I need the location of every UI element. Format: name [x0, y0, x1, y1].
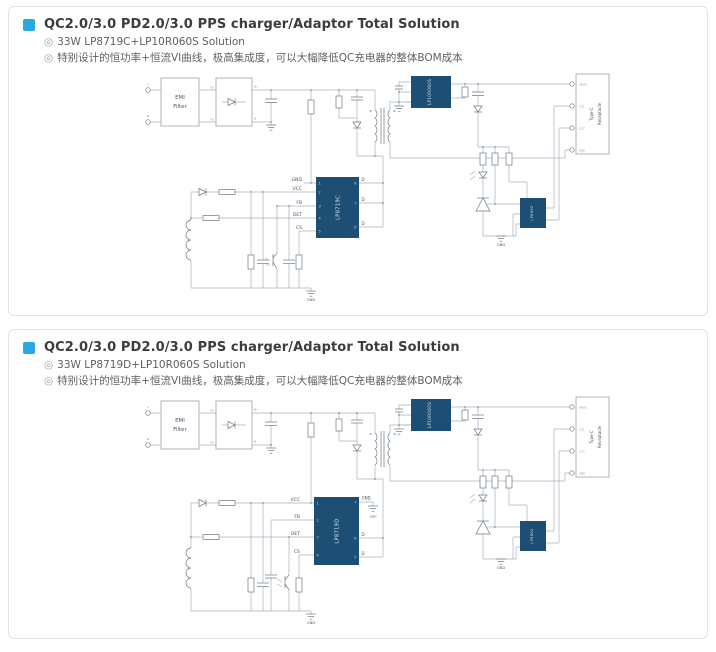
panel-header: QC2.0/3.0 PD2.0/3.0 PPS charger/Adaptor …: [23, 17, 705, 32]
cc-wires: [546, 429, 570, 543]
connector-pin-label: CC2: [579, 126, 585, 130]
emi-label-1: EMI: [175, 95, 185, 101]
optocoupler-transistor: [265, 205, 278, 288]
panel-title: QC2.0/3.0 PD2.0/3.0 PPS charger/Adaptor …: [44, 340, 460, 355]
typec-connector: VBUS CC1 CC2 GND Type-C Receptacle: [570, 74, 609, 154]
pin-number: 2: [319, 190, 321, 194]
connector-pin-label: CC1: [579, 427, 585, 431]
emi-filter-box: EMI Filter: [161, 78, 199, 126]
pin-label: CS: [294, 549, 300, 555]
transformer: [370, 413, 412, 481]
pin-number: 8: [354, 181, 356, 185]
connector-name-2: Receptacle: [597, 425, 602, 448]
typec-connector: VBUS CC1 CC2 GND Type-C Receptacle: [570, 397, 609, 477]
bulk-capacitor: [252, 89, 277, 130]
bullet-item: ◎特别设计的恒功率+恒流VI曲线，极高集成度，可以大幅降低QC充电器的整体BOM…: [44, 374, 705, 390]
connector-pin-label: GND: [579, 471, 585, 475]
shunt-regulator: [476, 521, 495, 534]
gnd-label: GND: [497, 566, 505, 570]
ground-symbol: [266, 125, 276, 130]
ac-label: AC: [210, 117, 214, 121]
ground-symbol: [496, 559, 506, 564]
sr-ic: LP10R060S: [394, 76, 468, 111]
pin-number: 3: [317, 535, 319, 539]
pin-number: 5: [354, 555, 356, 559]
rcd-snubber: [336, 412, 383, 479]
ac-label: AC: [210, 85, 214, 89]
bullet-list: ◎33W LP8719C+LP10R060S Solution ◎特别设计的恒功…: [44, 35, 705, 67]
rcd-snubber: [336, 89, 383, 156]
terminal-n-label: N: [147, 437, 149, 441]
circle-bullet-icon: ◎: [44, 375, 53, 387]
ground-symbol: [306, 291, 316, 296]
emi-label-2: Filter: [173, 427, 187, 433]
bullet-text: 特别设计的恒功率+恒流VI曲线，极高集成度，可以大幅降低QC充电器的整体BOM成…: [57, 375, 463, 387]
main-ic-name: LP8719D: [335, 518, 341, 543]
optocoupler-led: [470, 171, 487, 180]
ground-symbol: [394, 429, 404, 434]
main-ic: LP8719D VCC FB DET CS 1 2 3 4 7 6 5 GND …: [219, 495, 378, 565]
bridge-rectifier: [216, 401, 252, 449]
emi-filter-box: EMI Filter: [161, 401, 199, 449]
pin-number: 7: [354, 201, 356, 205]
ac-input-terminals: L N: [146, 82, 161, 124]
transformer: [370, 90, 412, 158]
panel-title: QC2.0/3.0 PD2.0/3.0 PPS charger/Adaptor …: [44, 17, 460, 32]
pin-number: 1: [317, 501, 319, 505]
pin-number: 5: [319, 229, 321, 233]
panel-header: QC2.0/3.0 PD2.0/3.0 PPS charger/Adaptor …: [23, 340, 705, 355]
bminus-label: B-: [254, 439, 257, 443]
bullet-item: ◎33W LP8719D+LP10R060S Solution: [44, 358, 705, 374]
bulk-capacitor: [252, 412, 277, 453]
solution-panel-1: QC2.0/3.0 PD2.0/3.0 PPS charger/Adaptor …: [8, 6, 708, 316]
pin-label: FB: [296, 200, 302, 206]
shunt-regulator: [476, 198, 495, 211]
bplus-label: B+: [254, 407, 259, 411]
blue-square-icon: [23, 19, 35, 31]
pin-label: GND: [362, 495, 371, 500]
circle-bullet-icon: ◎: [44, 36, 53, 48]
startup-resistor: [308, 412, 314, 504]
sr-ic-name: LP10R060S: [427, 401, 432, 427]
gnd-label: GND: [497, 243, 505, 247]
ground-symbol: [266, 448, 276, 453]
ground-symbol: [496, 236, 506, 241]
bullet-text: 33W LP8719D+LP10R060S Solution: [57, 359, 246, 371]
pin-label: DET: [293, 212, 302, 218]
ground-symbol: [394, 106, 404, 111]
bullet-item: ◎特别设计的恒功率+恒流VI曲线，极高集成度，可以大幅降低QC充电器的整体BOM…: [44, 51, 705, 67]
connector-name-1: Type-C: [589, 107, 594, 122]
connector-pin-label: VBUS: [579, 405, 587, 409]
pin-label: CS: [296, 225, 302, 231]
protocol-ic-name: LP8902: [530, 205, 534, 220]
solution-panel-2: QC2.0/3.0 PD2.0/3.0 PPS charger/Adaptor …: [8, 329, 708, 639]
ground-symbol: [306, 614, 316, 619]
optocoupler-transistor: [277, 536, 290, 611]
pin-label: DET: [291, 531, 300, 537]
bullet-item: ◎33W LP8719C+LP10R060S Solution: [44, 35, 705, 51]
gnd-label: GND: [307, 298, 315, 302]
pin-number: 3: [319, 204, 321, 208]
bullet-list: ◎33W LP8719D+LP10R060S Solution ◎特别设计的恒功…: [44, 358, 705, 390]
drain-bus: [359, 156, 383, 227]
pin-label: FB: [294, 514, 300, 520]
bridge-rectifier: [216, 78, 252, 126]
terminal-n-label: N: [147, 114, 149, 118]
bplus-label: B+: [254, 84, 259, 88]
startup-resistor: [308, 89, 314, 184]
pin-number: 2: [317, 518, 319, 522]
cc-wires: [546, 106, 570, 220]
emi-label-2: Filter: [173, 104, 187, 110]
ground-symbol: [368, 506, 378, 511]
ac-label: AC: [210, 408, 214, 412]
pin-number: 1: [319, 181, 321, 185]
main-ic-name: LP8719C: [336, 194, 342, 219]
pin-label: D: [362, 532, 365, 537]
terminal-l-label: L: [147, 82, 149, 86]
connector-name-2: Receptacle: [597, 102, 602, 125]
ac-input-terminals: L N: [146, 405, 161, 447]
bullet-text: 特别设计的恒功率+恒流VI曲线，极高集成度，可以大幅降低QC充电器的整体BOM成…: [57, 52, 463, 64]
connector-name-1: Type-C: [589, 430, 594, 445]
pin-number: 6: [354, 225, 356, 229]
pin-label: VCC: [291, 497, 300, 503]
gnd-label: GND: [370, 514, 378, 518]
connector-pin-label: CC2: [579, 449, 585, 453]
secondary-feedback: LP8902 GND: [470, 106, 570, 247]
pin-number: 6: [354, 536, 356, 540]
terminal-l-label: L: [147, 405, 149, 409]
connector-pin-label: CC1: [579, 104, 585, 108]
pin-label: GND: [292, 177, 303, 183]
circle-bullet-icon: ◎: [44, 52, 53, 64]
emi-label-1: EMI: [175, 418, 185, 424]
gnd-label: GND: [307, 621, 315, 625]
ac-label: AC: [210, 440, 214, 444]
pin-label: D: [362, 221, 365, 226]
circle-bullet-icon: ◎: [44, 359, 53, 371]
circuit-schematic-2: L N EMI Filter AC AC B+ B-: [23, 393, 708, 628]
bullet-text: 33W LP8719C+LP10R060S Solution: [57, 36, 245, 48]
circuit-schematic-1: L N EMI Filter AC AC B+ B-: [23, 70, 708, 305]
pin-label: D: [362, 551, 365, 556]
pin-label: VCC: [293, 186, 302, 192]
protocol-ic-name: LP8902: [530, 528, 534, 543]
connector-pin-label: VBUS: [579, 82, 587, 86]
pin-label: D: [362, 177, 365, 182]
pin-number: 7: [354, 500, 356, 504]
main-ic: LP8719C GND VCC FB DET CS 1 2 3 4 5 8 7 …: [219, 177, 365, 238]
sr-ic: LP10R060S: [394, 399, 468, 434]
optocoupler-led: [470, 494, 487, 503]
bminus-label: B-: [254, 116, 257, 120]
pin-label: D: [362, 197, 365, 202]
blue-square-icon: [23, 342, 35, 354]
sr-ic-name: LP10R060S: [427, 78, 432, 104]
secondary-feedback: LP8902 GND: [470, 429, 570, 570]
connector-pin-label: GND: [579, 148, 585, 152]
